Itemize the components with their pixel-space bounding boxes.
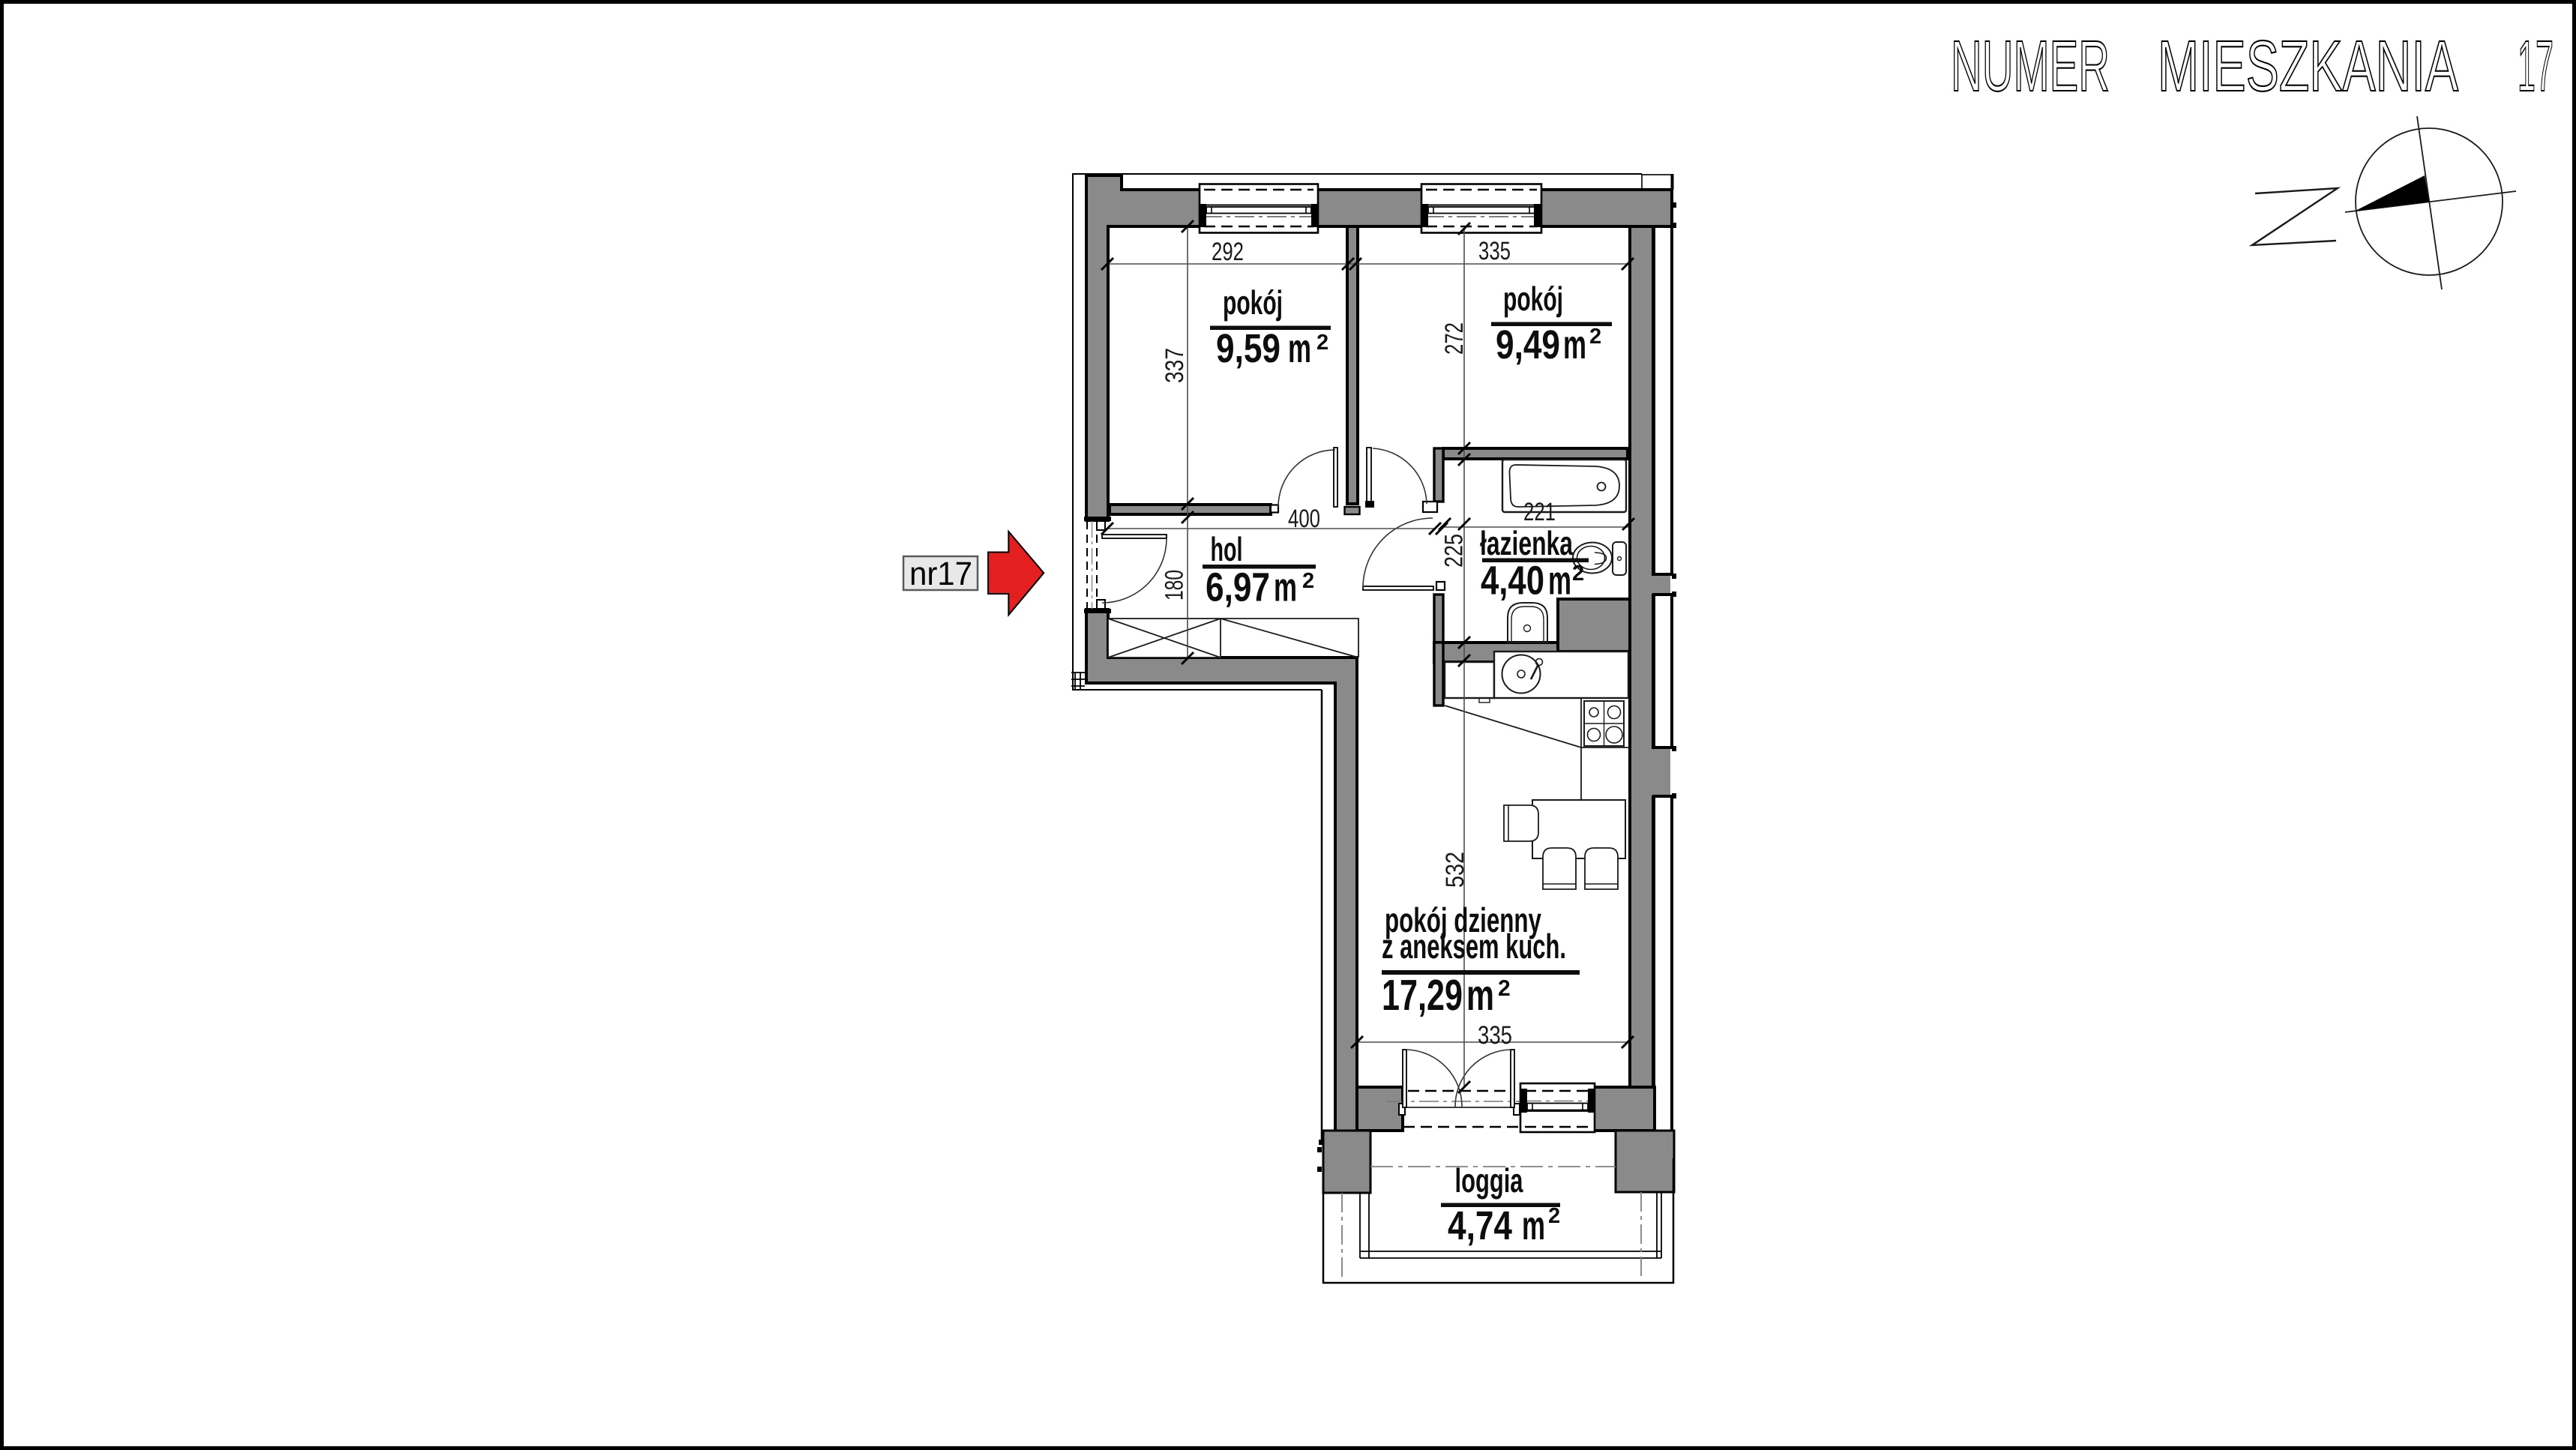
svg-text:400: 400: [1288, 505, 1320, 533]
svg-text:m: m: [1548, 559, 1571, 604]
svg-text:2: 2: [1316, 331, 1328, 355]
svg-text:225: 225: [1440, 534, 1469, 568]
svg-text:2: 2: [1589, 325, 1601, 349]
svg-text:z aneksem kuch.: z aneksem kuch.: [1382, 927, 1566, 966]
svg-text:9,49: 9,49: [1496, 322, 1560, 367]
svg-text:nr17: nr17: [909, 556, 972, 592]
svg-text:loggia: loggia: [1455, 1161, 1524, 1200]
svg-text:17: 17: [2518, 26, 2554, 106]
svg-text:532: 532: [1441, 852, 1469, 888]
svg-text:4,74: 4,74: [1448, 1203, 1512, 1248]
svg-text:180: 180: [1161, 570, 1189, 601]
svg-text:m: m: [1288, 326, 1311, 371]
svg-text:221: 221: [1523, 498, 1556, 526]
svg-text:2: 2: [1302, 569, 1314, 593]
svg-text:272: 272: [1440, 322, 1469, 355]
svg-text:6,97: 6,97: [1206, 565, 1270, 610]
svg-text:2: 2: [1498, 976, 1511, 1001]
svg-text:hol: hol: [1211, 530, 1243, 568]
svg-text:m: m: [1522, 1203, 1545, 1248]
svg-text:m: m: [1466, 971, 1494, 1020]
svg-text:m: m: [1563, 322, 1586, 367]
svg-text:335: 335: [1478, 1021, 1512, 1050]
svg-text:9,59: 9,59: [1216, 326, 1281, 371]
svg-text:m: m: [1274, 565, 1297, 610]
svg-text:MIESZKANIA: MIESZKANIA: [2158, 26, 2458, 106]
svg-text:pokój: pokój: [1223, 283, 1283, 322]
svg-text:łazienka: łazienka: [1480, 524, 1574, 562]
svg-text:4,40: 4,40: [1481, 559, 1544, 604]
svg-text:17,29: 17,29: [1382, 971, 1463, 1020]
svg-text:292: 292: [1212, 238, 1244, 266]
svg-text:pokój: pokój: [1503, 280, 1563, 318]
svg-text:NUMER: NUMER: [1951, 26, 2110, 106]
svg-text:2: 2: [1572, 562, 1584, 586]
svg-text:335: 335: [1478, 237, 1511, 265]
svg-text:337: 337: [1161, 348, 1189, 383]
svg-text:2: 2: [1548, 1204, 1560, 1228]
